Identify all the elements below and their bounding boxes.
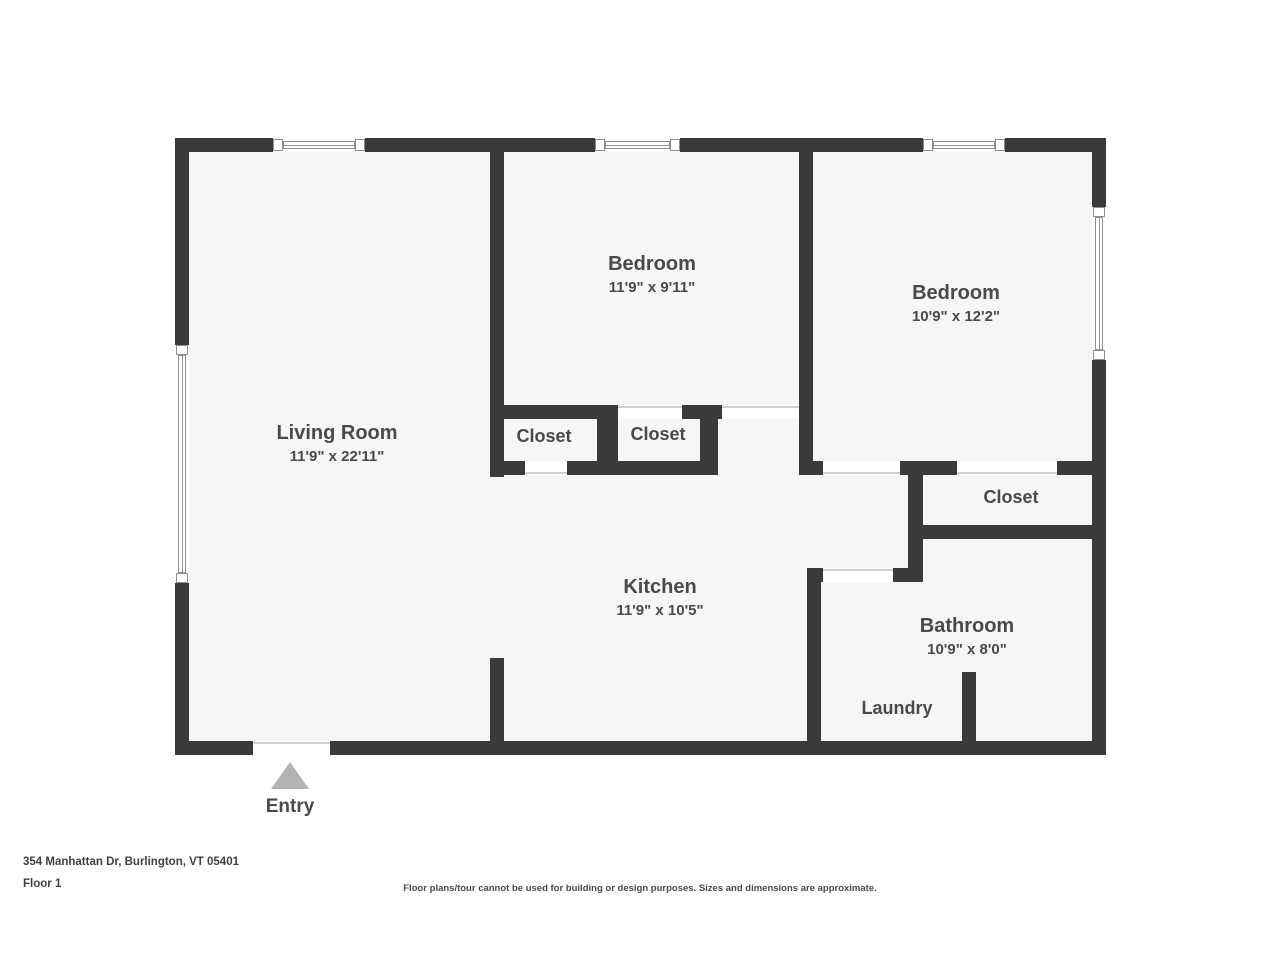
window-cap <box>176 345 188 355</box>
label-closet-middle: Closet <box>630 423 685 446</box>
wall-closet-right-bottom <box>908 525 1106 539</box>
door-bathroom <box>823 568 893 582</box>
room-dims: 11'9" x 9'11" <box>608 277 696 299</box>
window-cap <box>595 139 605 151</box>
entry-label: Entry <box>266 795 315 819</box>
window-cap <box>923 139 933 151</box>
door-closet-left <box>525 461 567 475</box>
label-closet-right: Closet <box>983 486 1038 509</box>
door-entry <box>253 741 330 755</box>
floor-name-text: Floor 1 <box>23 878 61 890</box>
room-name: Closet <box>630 423 685 446</box>
door-bedroom2 <box>823 461 900 475</box>
label-bedroom-2: Bedroom 10'9" x 12'2" <box>912 281 1000 328</box>
window-pane <box>178 355 186 573</box>
room-dims: 10'9" x 8'0" <box>920 639 1014 661</box>
door-closet-middle <box>618 405 682 419</box>
window-cap <box>1093 207 1105 217</box>
label-bedroom-1: Bedroom 11'9" x 9'11" <box>608 252 696 299</box>
window-cap <box>355 139 365 151</box>
wall-bathroom-left <box>807 568 821 755</box>
wall-bathroom-top-b <box>893 568 923 582</box>
room-name: Closet <box>516 425 571 448</box>
window-bedroom2-top <box>923 138 1005 152</box>
label-closet-left: Closet <box>516 425 571 448</box>
wall-kitchen-stub <box>490 658 504 755</box>
label-bathroom: Bathroom 10'9" x 8'0" <box>920 614 1014 661</box>
entry-arrow-icon <box>271 762 309 789</box>
room-dims: 11'9" x 10'5" <box>616 600 703 622</box>
window-living-room-left <box>175 345 189 583</box>
wall-bedroom1-bedroom2 <box>799 138 813 475</box>
door-closet-right <box>957 461 1057 475</box>
wall-closet-left-bottom-a <box>490 461 525 475</box>
wall-laundry-stub <box>962 672 976 755</box>
room-name: Closet <box>983 486 1038 509</box>
address-text: 354 Manhattan Dr, Burlington, VT 05401 <box>23 856 239 868</box>
room-name: Bedroom <box>608 252 696 277</box>
window-cap <box>995 139 1005 151</box>
window-cap <box>176 573 188 583</box>
label-kitchen: Kitchen 11'9" x 10'5" <box>616 575 703 622</box>
window-cap <box>670 139 680 151</box>
floor-plan-canvas: Living Room 11'9" x 22'11" Bedroom 11'9"… <box>0 0 1280 960</box>
room-name: Bedroom <box>912 281 1000 306</box>
disclaimer-text: Floor plans/tour cannot be used for buil… <box>403 883 877 894</box>
door-bedroom1 <box>722 405 799 419</box>
room-name: Kitchen <box>616 575 703 600</box>
label-living-room: Living Room 11'9" x 22'11" <box>276 421 397 468</box>
wall-bedroom2-bottom-c <box>1057 461 1106 475</box>
room-dims: 11'9" x 22'11" <box>276 446 397 468</box>
window-bedroom1 <box>595 138 680 152</box>
window-living-room <box>273 138 365 152</box>
window-pane <box>1095 217 1103 350</box>
room-name: Laundry <box>861 697 932 720</box>
wall-closet-left-bottom-b <box>567 461 597 475</box>
wall-closet-middle-bottom <box>597 461 718 475</box>
room-name: Living Room <box>276 421 397 446</box>
window-pane <box>933 141 995 149</box>
wall-closet-right-left <box>908 461 923 582</box>
room-name: Bathroom <box>920 614 1014 639</box>
wall-bedroom2-bottom-a <box>799 461 823 475</box>
window-cap <box>273 139 283 151</box>
label-laundry: Laundry <box>861 697 932 720</box>
window-pane <box>605 141 670 149</box>
window-pane <box>283 141 355 149</box>
wall-living-bedroom1 <box>490 138 504 477</box>
room-dims: 10'9" x 12'2" <box>912 306 1000 328</box>
label-entry: Entry <box>266 795 315 819</box>
window-bedroom2-right <box>1092 207 1106 360</box>
window-cap <box>1093 350 1105 360</box>
